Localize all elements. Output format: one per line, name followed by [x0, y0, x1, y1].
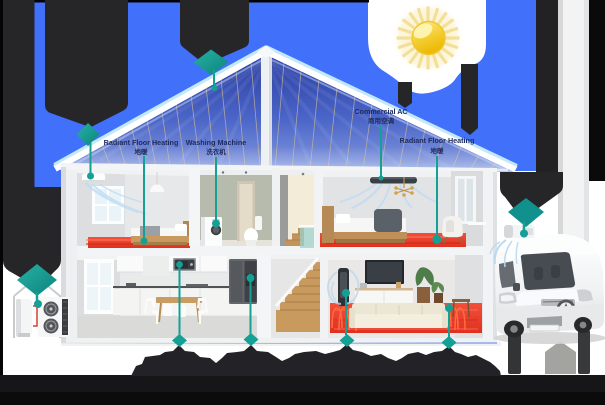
svg-text:Radiant Floor Heating: Radiant Floor Heating: [400, 136, 475, 145]
svg-text:Radiant Floor Heating: Radiant Floor Heating: [104, 138, 179, 147]
svg-text:Washing Machine: Washing Machine: [186, 138, 246, 147]
svg-text:地暖: 地暖: [431, 146, 445, 155]
svg-text:洗衣机: 洗衣机: [206, 147, 226, 156]
svg-text:Commercial AC: Commercial AC: [354, 107, 407, 116]
svg-text:地暖: 地暖: [135, 147, 149, 156]
svg-text:商用空调: 商用空调: [368, 116, 395, 125]
